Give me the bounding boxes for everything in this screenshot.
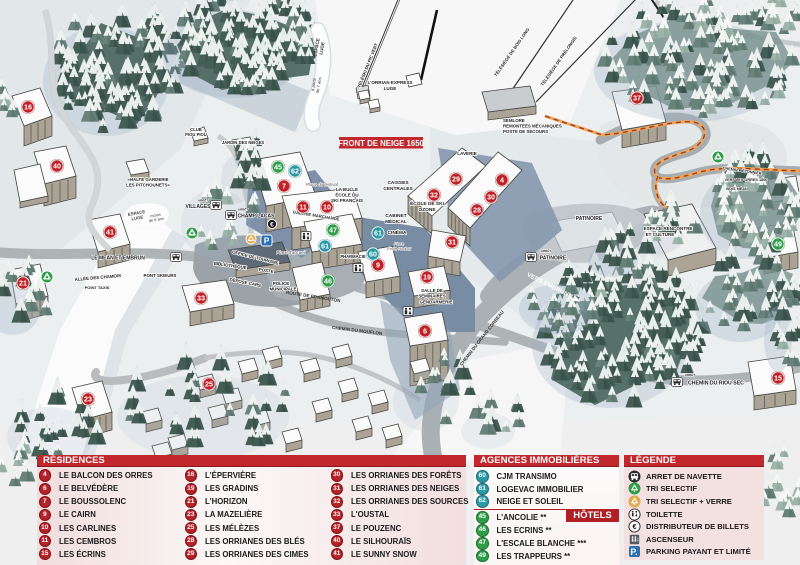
svg-text:€: € — [270, 222, 274, 229]
svg-text:45: 45 — [274, 163, 282, 172]
svg-text:21: 21 — [19, 279, 27, 288]
svg-text:ARRÊT: ARRÊT — [238, 207, 249, 212]
svg-text:31: 31 — [448, 238, 456, 247]
svg-text:LUGE: LUGE — [384, 86, 397, 91]
svg-text:Place du festival: Place du festival — [306, 182, 339, 187]
svg-text:€: € — [633, 522, 637, 531]
svg-text:61: 61 — [321, 242, 329, 251]
svg-text:OZONE: OZONE — [418, 207, 436, 213]
svg-text:VERS LES ORRES 1800: VERS LES ORRES 1800 — [725, 178, 768, 182]
svg-text:16: 16 — [24, 103, 32, 112]
svg-text:40: 40 — [53, 162, 61, 171]
svg-text:4: 4 — [500, 176, 504, 185]
svg-text:SÉMINAIRES: SÉMINAIRES — [418, 294, 445, 299]
svg-text:Émile Hodoul: Émile Hodoul — [387, 246, 411, 251]
svg-text:ET CULTURE: ET CULTURE — [646, 232, 675, 237]
svg-text:47: 47 — [329, 226, 337, 235]
svg-text:41: 41 — [106, 228, 114, 237]
svg-text:6: 6 — [423, 327, 427, 336]
svg-text:10: 10 — [323, 203, 331, 212]
svg-text:CAISSES: CAISSES — [387, 180, 409, 186]
svg-text:VILLAGES: VILLAGES — [185, 204, 211, 210]
svg-text:ARRÊT: ARRÊT — [685, 372, 696, 377]
svg-text:25: 25 — [205, 380, 213, 389]
svg-text:19: 19 — [423, 273, 431, 282]
svg-text:SALLE DE: SALLE DE — [421, 288, 443, 293]
svg-text:PATINOIRE: PATINOIRE — [540, 256, 567, 262]
svg-text:PONT SKIEURS: PONT SKIEURS — [144, 273, 177, 278]
svg-text:CHAMP LACAS: CHAMP LACAS — [238, 214, 276, 220]
svg-text:30: 30 — [487, 193, 495, 202]
svg-text:ARRÊT: ARRÊT — [541, 248, 552, 253]
svg-text:28: 28 — [473, 206, 481, 215]
svg-text:JARDIN DES NEIGES: JARDIN DES NEIGES — [222, 140, 265, 145]
svg-text:«HALTE GARDERIE: «HALTE GARDERIE — [127, 177, 168, 182]
svg-text:PATINOIRE: PATINOIRE — [576, 216, 603, 222]
svg-text:CENTRALES: CENTRALES — [383, 186, 413, 192]
svg-text:REMONTÉES MÉCANIQUES: REMONTÉES MÉCANIQUES — [503, 124, 562, 129]
svg-text:POINT TAXIS: POINT TAXIS — [85, 285, 110, 290]
svg-text:SKI FRANÇAIS: SKI FRANÇAIS — [331, 198, 363, 203]
svg-text:PHARMACIE: PHARMACIE — [340, 254, 366, 259]
svg-text:32: 32 — [430, 191, 438, 200]
svg-text:11: 11 — [299, 203, 307, 212]
svg-text:POSTE DE SECOURS: POSTE DE SECOURS — [503, 129, 548, 134]
svg-text:GENDARMERIE: GENDARMERIE — [420, 300, 453, 305]
svg-text:ÉCOLE DU: ÉCOLE DU — [335, 191, 358, 198]
svg-text:7: 7 — [282, 182, 286, 191]
svg-text:L'ORRIAN EXPRESS: L'ORRIAN EXPRESS — [368, 80, 413, 85]
svg-text:CHEMIN DU RIOU SEC: CHEMIN DU RIOU SEC — [688, 381, 744, 387]
svg-text:ARRÊT: ARRÊT — [198, 198, 209, 203]
svg-text:29: 29 — [452, 175, 460, 184]
svg-text:9: 9 — [376, 261, 380, 270]
svg-text:61: 61 — [374, 229, 382, 238]
svg-text:ESPACE RENCONTRE: ESPACE RENCONTRE — [644, 226, 693, 231]
svg-text:POLICE: POLICE — [273, 281, 289, 286]
svg-text:FRONT DE NEIGE 1650: FRONT DE NEIGE 1650 — [338, 139, 424, 148]
svg-text:LA BULLE: LA BULLE — [336, 187, 358, 192]
svg-text:CABINET: CABINET — [385, 213, 406, 219]
svg-text:LES PITCHOUNETS»: LES PITCHOUNETS» — [126, 183, 170, 188]
svg-text:15: 15 — [774, 374, 782, 383]
svg-text:LE MEAN ET EMBRUN: LE MEAN ET EMBRUN — [91, 256, 145, 262]
svg-text:23: 23 — [84, 395, 92, 404]
svg-text:P.: P. — [630, 547, 637, 557]
svg-text:46: 46 — [324, 277, 332, 286]
svg-text:33: 33 — [197, 294, 205, 303]
svg-text:PIOU PIOU: PIOU PIOU — [185, 132, 207, 137]
svg-text:P: P — [264, 236, 270, 246]
svg-text:62: 62 — [291, 167, 299, 176]
svg-text:37: 37 — [633, 94, 641, 103]
svg-text:LAVERIE: LAVERIE — [457, 151, 477, 156]
svg-text:SEMLORE: SEMLORE — [503, 118, 525, 123]
svg-text:60: 60 — [369, 250, 377, 259]
svg-text:49: 49 — [774, 240, 782, 249]
svg-text:BOIS MÉAN: BOIS MÉAN — [726, 186, 748, 191]
svg-text:Place d'accueil: Place d'accueil — [276, 250, 306, 255]
